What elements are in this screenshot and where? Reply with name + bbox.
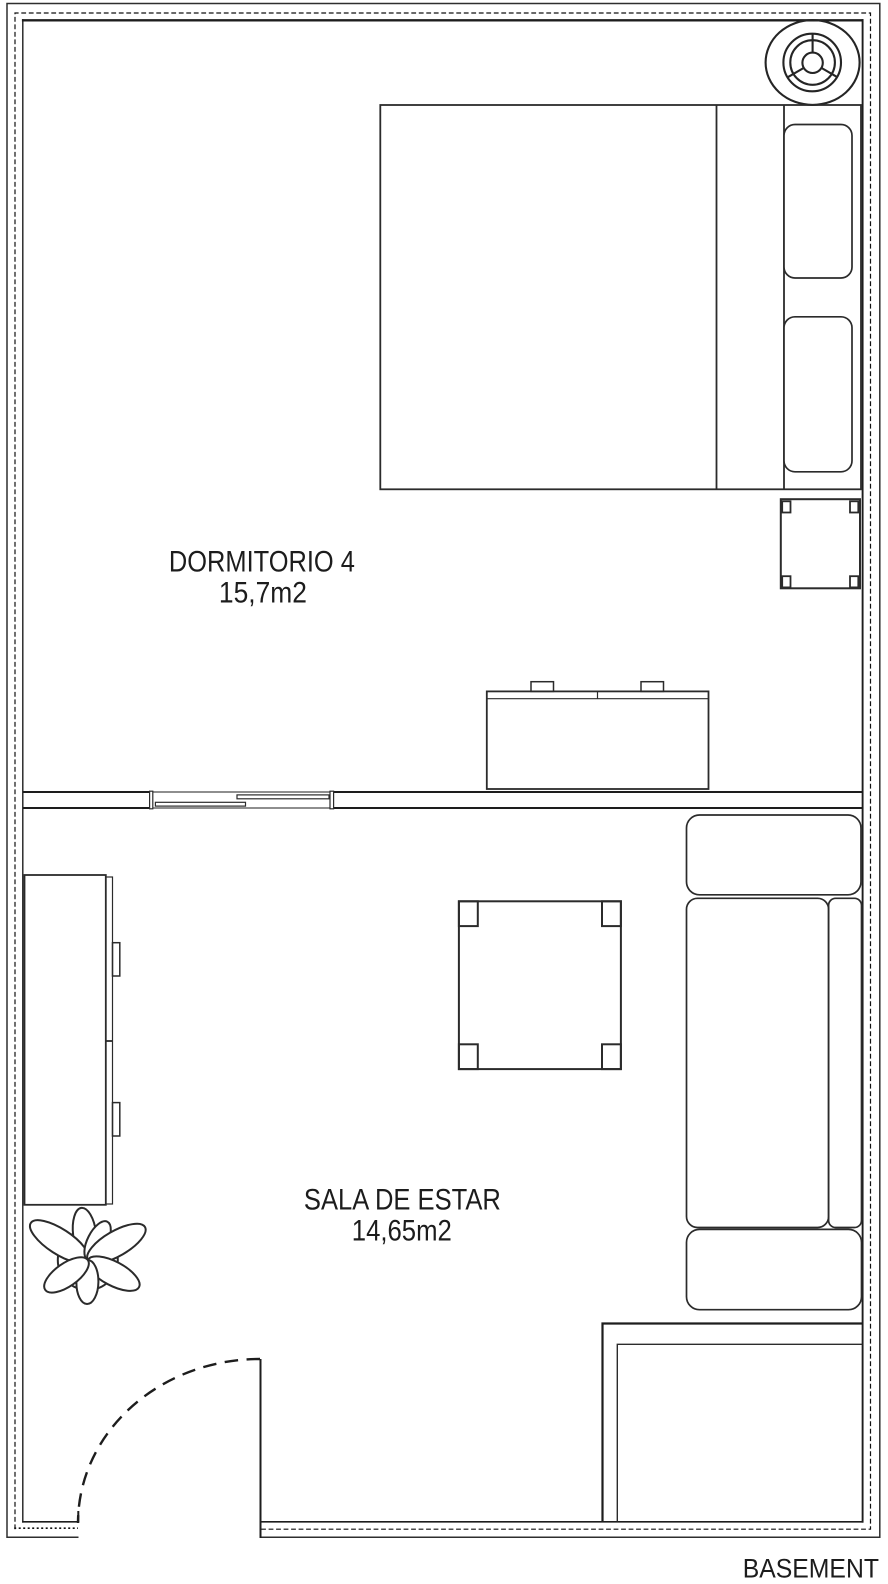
svg-text:DORMITORIO 4: DORMITORIO 4 <box>169 546 355 579</box>
svg-text:SALA DE ESTAR: SALA DE ESTAR <box>304 1183 501 1216</box>
svg-text:BASEMENT: BASEMENT <box>743 1552 879 1583</box>
svg-text:14,65m2: 14,65m2 <box>352 1214 452 1247</box>
svg-text:15,7m2: 15,7m2 <box>219 577 307 610</box>
